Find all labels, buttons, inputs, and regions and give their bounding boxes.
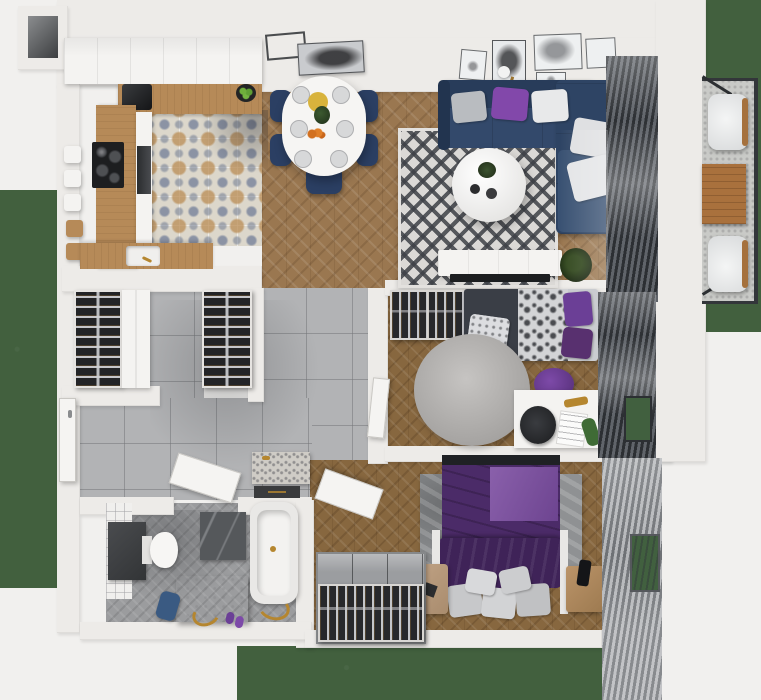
plate-5: [294, 150, 312, 168]
bathtub-drain: [270, 546, 276, 552]
gallery-frame-2: [492, 40, 526, 82]
dining-frame-art: [297, 40, 365, 75]
wall-closet-bottom: [62, 386, 160, 406]
living-window-blinds: [606, 56, 658, 302]
balcony-armchair-bottom-trim: [742, 240, 748, 288]
bedroom-small-window: [624, 396, 652, 442]
gallery-frame-1: [459, 49, 488, 81]
gallery-frame-3: [533, 33, 582, 71]
master-window: [630, 534, 660, 592]
coffee-table-decor-2: [486, 188, 497, 199]
sofa-pillow-grey: [451, 90, 488, 123]
bench-gold-item: [262, 456, 270, 460]
toilet: [150, 532, 178, 568]
wall-kitchen-closet: [62, 266, 262, 292]
cooktop: [92, 142, 124, 188]
coffee-table: [452, 148, 526, 222]
floor-plan-scene: [0, 0, 761, 700]
bar-stool-3: [64, 194, 81, 211]
sofa-pillow-white-1: [531, 89, 569, 123]
bar-stool-1: [64, 146, 81, 163]
clothes-rack-top-panels: [318, 554, 424, 584]
marble-wall-panel: [200, 512, 246, 560]
bar-stool-2: [64, 170, 81, 187]
sofa-pillow-purple: [491, 86, 530, 121]
floor-lamp-bulb-1: [498, 66, 510, 78]
utility-shaft-opening: [28, 16, 58, 58]
tv-console: [438, 250, 562, 276]
clothes-rack-hangers: [318, 584, 424, 642]
dark-doormat: [254, 486, 300, 498]
living-plant: [560, 248, 592, 282]
stone-bench: [252, 452, 310, 484]
wall-right: [656, 0, 706, 462]
grass-bottom: [237, 646, 602, 700]
table-flowers: [314, 106, 330, 124]
entrance-door-handle: [68, 410, 72, 418]
grass-left: [0, 190, 57, 588]
coffee-table-decor-1: [470, 184, 480, 194]
oven: [137, 146, 151, 194]
plate-6: [330, 150, 348, 168]
balcony-table: [702, 164, 746, 224]
closet-wardrobe-right: [202, 290, 252, 388]
tv: [450, 274, 550, 282]
master-pillow-4: [464, 568, 498, 597]
balcony-armchair-top-trim: [742, 98, 748, 146]
bathtub-basin: [257, 510, 291, 596]
fruit-bowl: [236, 84, 256, 102]
kitchen-upper-cabinets: [64, 38, 262, 84]
table-oranges: [306, 128, 326, 140]
plate-4: [336, 120, 354, 138]
master-bed-duvet-light-patch: [490, 467, 558, 521]
desk-chair: [520, 406, 556, 444]
sofa-armrest: [438, 80, 450, 150]
bedroom-small-round-rug: [414, 334, 530, 446]
kitchen-floor: [150, 110, 268, 246]
bar-stool-4: [66, 220, 83, 237]
closet-floor: [148, 290, 204, 400]
bedroom-small-wardrobe: [390, 290, 466, 340]
single-bed-throw-purple: [561, 327, 594, 360]
closet-wardrobe-left: [74, 290, 122, 388]
plate-2: [332, 86, 350, 104]
closet-cabinet: [122, 290, 150, 388]
bath-dark-counter: [108, 522, 146, 580]
coffee-table-decor-plant: [478, 162, 496, 178]
single-bed-pillow-purple: [563, 291, 594, 327]
